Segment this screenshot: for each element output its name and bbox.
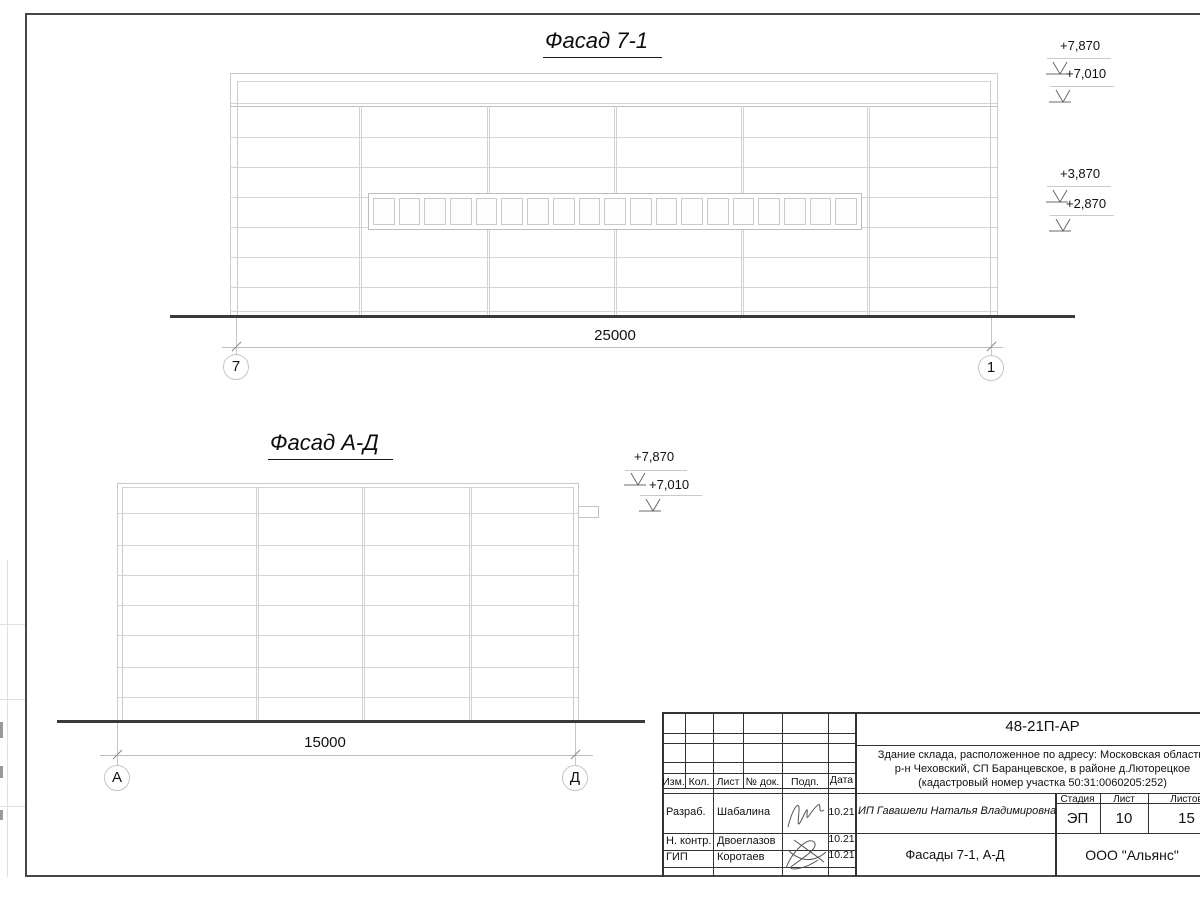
facade2-canopy-tab (578, 506, 599, 518)
grid-bubble-a: А (104, 765, 130, 791)
project-address-line1: Здание склада, расположенное по адресу: … (855, 749, 1200, 761)
facade2-dimension-line (100, 755, 593, 756)
elevation-mark-icon (624, 472, 648, 486)
facade1-window-band (368, 193, 862, 230)
row3-role: ГИП (666, 851, 688, 863)
drawing-sheet: Фасад 7-1 (0, 0, 1200, 900)
project-address-line2: р-н Чеховский, СП Баранцевское, в районе… (855, 763, 1200, 775)
grid-bubble-d: Д (562, 765, 588, 791)
facade2-column-line (256, 487, 259, 720)
frame-top-border (25, 13, 1200, 15)
stage-value: ЭП (1055, 810, 1100, 827)
titleblock-grid-line (662, 762, 855, 763)
row2-date: 10.21 (828, 833, 855, 845)
titleblock-grid-line (662, 788, 855, 789)
facade2-dimension-text: 15000 (270, 734, 380, 751)
window (527, 198, 549, 225)
titleblock-grid-line (662, 773, 855, 774)
elevation-text: +3,870 (1060, 166, 1100, 181)
grid-bubble-1: 1 (978, 355, 1004, 381)
titleblock-grid-line (662, 833, 1200, 834)
facade2-left-edge (117, 483, 118, 720)
facade1-parapet-line (237, 81, 990, 82)
facade2-siding-line (117, 605, 578, 606)
margin-stamp-line (0, 699, 25, 700)
facade1-right-edge (997, 73, 998, 315)
facade1-left-edge (230, 73, 231, 315)
sheets-value: 15 (1148, 810, 1200, 827)
facade1-extension-line (991, 318, 992, 359)
facade1-title: Фасад 7-1 (543, 28, 662, 58)
window (733, 198, 755, 225)
row3-date: 10.21 (828, 849, 855, 861)
sheets-label: Листов (1148, 794, 1200, 805)
window (373, 198, 395, 225)
facade2-siding-line (117, 545, 578, 546)
facade1-extension-line (236, 318, 237, 359)
facade1-dimension-text: 25000 (560, 327, 670, 344)
facade2-siding-line (117, 697, 578, 698)
elevation-text: +7,870 (1060, 38, 1100, 53)
window (424, 198, 446, 225)
row1-role: Разраб. (666, 806, 706, 818)
titleblock-grid-line (713, 712, 714, 877)
facade2-column-line (362, 487, 365, 720)
facade1-right-edge (990, 81, 991, 315)
facade2-extension-line (117, 723, 118, 768)
margin-stamp-text-stub (0, 810, 3, 820)
margin-stamp-line (7, 560, 8, 877)
grid-bubble-7: 7 (223, 354, 249, 380)
facade1-column-line (867, 106, 870, 315)
elevation-mark-icon (1049, 89, 1073, 103)
facade1-column-line (359, 106, 362, 315)
window (501, 198, 523, 225)
project-address-line3: (кадастровый номер участка 50:31:0060205… (855, 777, 1200, 789)
col-list-label: Лист (713, 776, 743, 788)
client-name: ИП Гавашели Наталья Владимировна (858, 805, 1052, 817)
facade1-left-edge (237, 81, 238, 315)
margin-stamp-line (0, 624, 25, 625)
frame-bottom-border (25, 875, 1200, 877)
titleblock-left-border (662, 712, 664, 877)
facade2-column-line (469, 487, 472, 720)
col-izm-label: Изм. (662, 776, 685, 788)
elevation-mark-icon (1049, 218, 1073, 232)
col-doc-label: № док. (743, 776, 782, 788)
facade2-extension-line (575, 723, 576, 768)
row1-name: Шабалина (717, 806, 770, 818)
window (399, 198, 421, 225)
elevation-mark-icon (639, 498, 663, 512)
window (681, 198, 703, 225)
window (630, 198, 652, 225)
window (553, 198, 575, 225)
row3-name: Коротаев (717, 851, 765, 863)
col-podp-label: Подп. (782, 776, 828, 788)
facade2-siding-line (117, 635, 578, 636)
facade2-top-line (122, 487, 573, 488)
window (810, 198, 832, 225)
window (758, 198, 780, 225)
window (450, 198, 472, 225)
row2-name: Двоеглазов (717, 835, 775, 847)
sheet-title: Фасады 7-1, А-Д (855, 835, 1055, 875)
company-name: ООО "Альянс" (1057, 835, 1200, 875)
margin-stamp-line (0, 806, 25, 807)
row2-role: Н. контр. (666, 835, 711, 847)
window (784, 198, 806, 225)
elevation-text: +7,010 (649, 477, 689, 492)
elevation-shelf-line (1047, 186, 1111, 187)
window (579, 198, 601, 225)
facade2-siding-line (117, 667, 578, 668)
elevation-shelf-line (1050, 215, 1114, 216)
elevation-text: +2,870 (1066, 196, 1106, 211)
titleblock-grid-line (662, 733, 855, 734)
margin-stamp-text-stub (0, 766, 3, 778)
facade2-top-line (117, 483, 578, 484)
facade1-parapet-line (230, 73, 997, 74)
elevation-shelf-line (640, 495, 702, 496)
window (604, 198, 626, 225)
facade1-ground-line (170, 315, 1075, 318)
elevation-text: +7,010 (1066, 66, 1106, 81)
elevation-text: +7,870 (634, 449, 674, 464)
sheet-value: 10 (1100, 810, 1148, 827)
signature-icon (784, 795, 828, 833)
elevation-shelf-line (1047, 58, 1111, 59)
facade1-fascia-line (230, 103, 997, 104)
titleblock-grid-line (662, 743, 855, 744)
col-data-label: Дата (828, 774, 855, 786)
facade2-left-edge (122, 487, 123, 720)
facade2-ground-line (57, 720, 645, 723)
window (835, 198, 857, 225)
frame-left-border (25, 13, 27, 877)
elevation-shelf-line (1050, 86, 1114, 87)
facade2-siding-line (117, 513, 578, 514)
facade2-right-edge (578, 483, 579, 720)
row1-date: 10.21 (828, 806, 855, 818)
facade2-right-edge (573, 487, 574, 720)
sheet-label: Лист (1100, 794, 1148, 805)
facade1-dimension-line (222, 347, 1003, 348)
facade2-title: Фасад А-Д (268, 430, 393, 460)
window (656, 198, 678, 225)
window (476, 198, 498, 225)
stage-label: Стадия (1055, 794, 1100, 805)
margin-stamp-text-stub (0, 722, 3, 738)
titleblock-grid-line (855, 745, 1200, 746)
window (707, 198, 729, 225)
elevation-shelf-line (625, 470, 687, 471)
doc-number: 48-21П-АР (855, 718, 1200, 735)
col-kol-label: Кол. (685, 776, 713, 788)
facade2-siding-line (117, 575, 578, 576)
signature-icon (780, 830, 830, 874)
